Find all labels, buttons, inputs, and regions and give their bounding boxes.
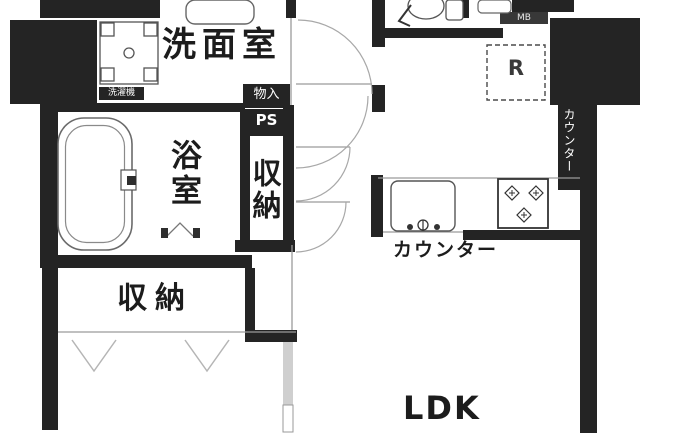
wall-pillar-left <box>10 20 97 104</box>
toilet-icon <box>408 0 463 20</box>
kitchen-counter-label: カウンター <box>393 241 498 260</box>
hand-basin-icon <box>478 0 511 13</box>
side-counter-label: カウンター <box>563 108 575 173</box>
badge-top-right <box>512 0 574 12</box>
bathtub-icon <box>58 118 136 250</box>
door-arc <box>296 202 346 252</box>
wall <box>240 130 293 136</box>
door-arcs <box>296 20 372 252</box>
washer-space-label: 洗濯機 <box>99 89 144 98</box>
washroom-label: 洗面室 <box>162 28 282 62</box>
wall <box>40 103 58 268</box>
kitchen-sink-icon <box>391 181 455 231</box>
hall-closet-label: 収納 <box>250 158 279 222</box>
refrigerator-label: R <box>487 58 545 79</box>
ldk-label: LDK <box>403 392 481 424</box>
floorplan: 洗面室 浴室 収納 物入 PS 収納 カウンター カウンター 洗濯機 R MB … <box>0 0 700 433</box>
gas-stove-icon <box>498 179 548 228</box>
door-arc <box>296 147 350 201</box>
floorplan-drawing <box>0 0 700 433</box>
wall <box>371 175 383 237</box>
door-arc <box>296 96 368 168</box>
wall <box>235 240 295 252</box>
wall <box>286 0 296 18</box>
washing-machine-pan-icon <box>100 22 158 84</box>
sliding-door-icon <box>283 342 293 432</box>
bathroom-label: 浴室 <box>167 139 198 209</box>
wall-right-exterior <box>580 105 597 433</box>
wall <box>40 255 252 268</box>
bottom-closet-label: 収納 <box>117 284 193 314</box>
storage-label: 物入 <box>243 88 290 101</box>
pipe-space-label: PS <box>243 113 290 128</box>
wall <box>40 0 160 18</box>
door-arc <box>298 20 372 94</box>
wall <box>40 103 245 112</box>
wall <box>375 28 503 38</box>
wall <box>372 0 385 47</box>
wall <box>42 268 58 430</box>
meter-box-label: MB <box>500 14 548 23</box>
toilet-door-mark-icon <box>399 5 411 26</box>
vanity-sink-icon <box>186 0 254 24</box>
wall <box>372 85 385 112</box>
bathroom-door-icon <box>161 223 200 238</box>
wall-pillar-right <box>550 18 640 105</box>
closet-door-marks-icon <box>72 340 229 371</box>
